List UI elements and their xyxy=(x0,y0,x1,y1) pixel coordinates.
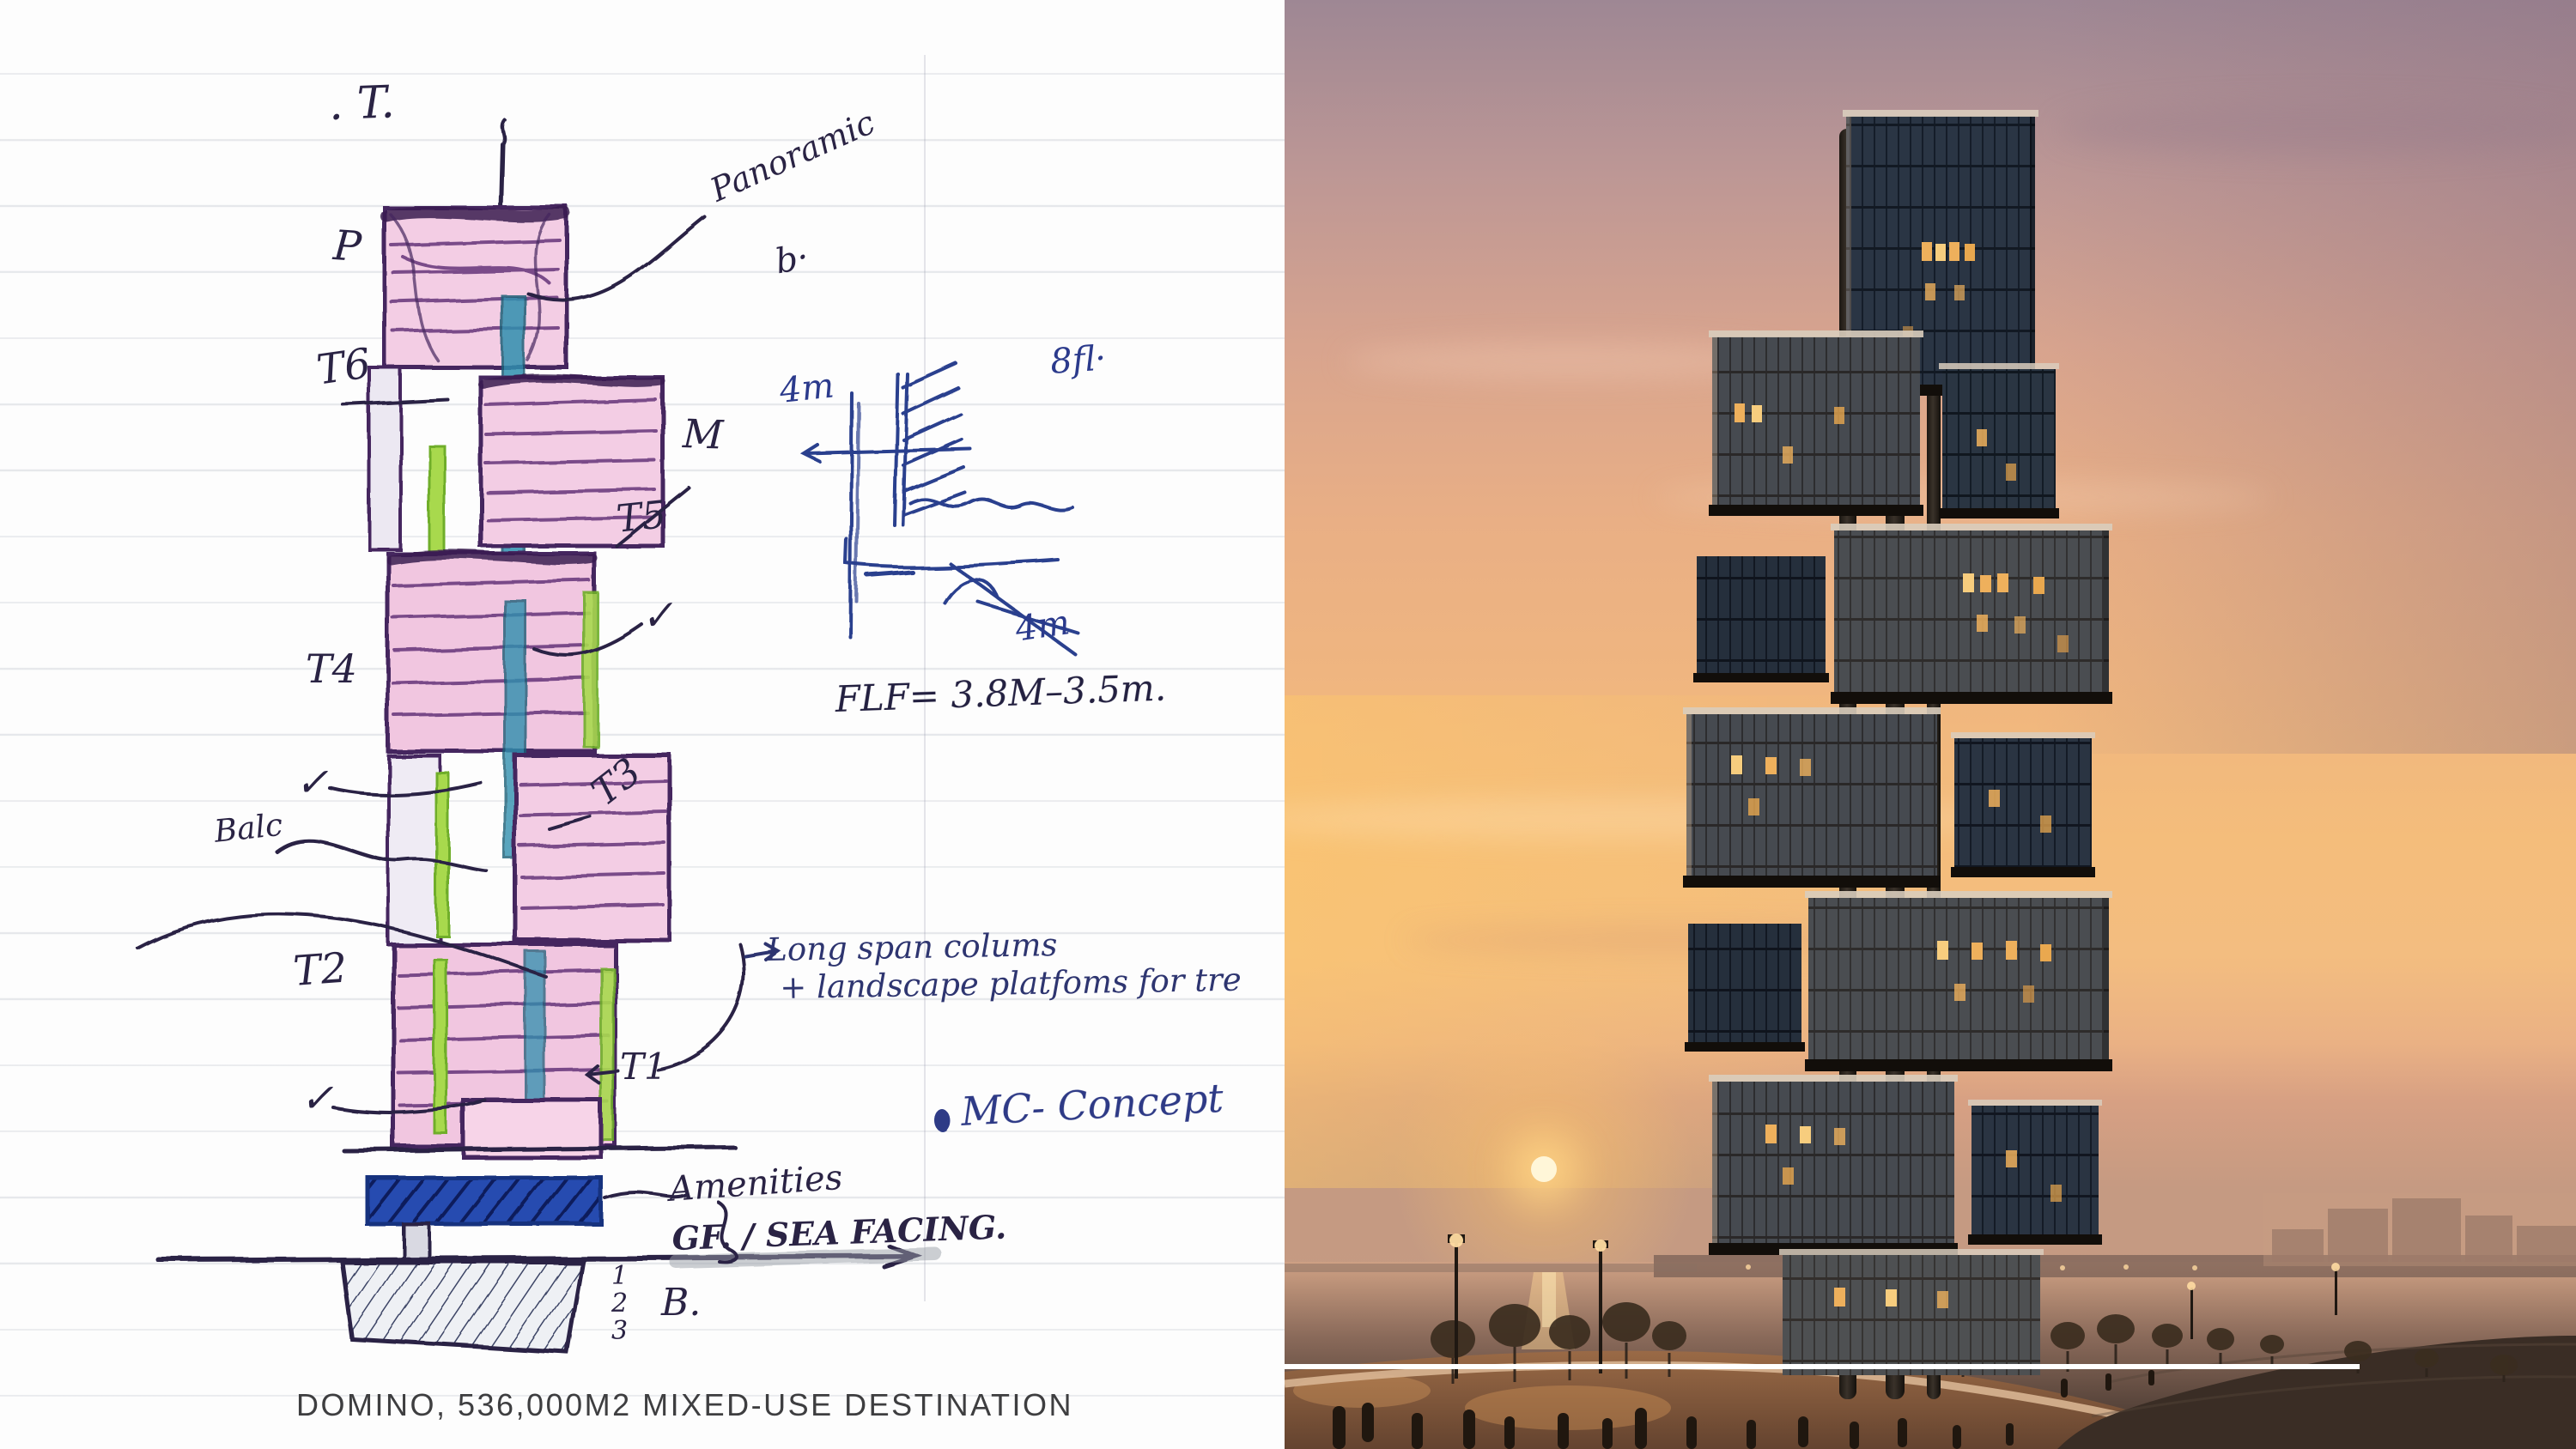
label-basement: B. xyxy=(661,1284,701,1322)
tower-box-l3-left xyxy=(1693,556,1829,682)
sketch-panel: . T. P Panoramic b· T6 M T5 ✓ T4 ✓ T3 Ba… xyxy=(0,0,1285,1449)
tower-box-l4-right xyxy=(1951,732,2095,877)
tower-box-l5-left xyxy=(1685,924,1805,1052)
label-t6: T6 xyxy=(314,343,374,391)
checkmark: ✓ xyxy=(295,762,329,802)
label-floors: 8fl· xyxy=(1049,341,1107,379)
waterfront-scene xyxy=(1285,0,2576,1449)
render-photo-panel xyxy=(1285,0,2576,1449)
slide-divider-line xyxy=(1285,1364,2360,1369)
amenities-slab xyxy=(368,1178,601,1224)
project-caption: DOMINO, 536,000M2 MIXED-USE DESTINATION xyxy=(296,1387,1073,1423)
label-balc: Balc xyxy=(213,810,284,848)
note-long-span-line1: Long span colums xyxy=(766,929,1058,966)
label-m: M xyxy=(682,414,724,455)
label-t5: T5 xyxy=(615,496,668,539)
tower-box-l5-right xyxy=(1805,891,2112,1071)
tower-box-l3-right xyxy=(1831,524,2112,704)
label-t1: T1 xyxy=(620,1049,667,1085)
label-b-upper: b· xyxy=(773,239,811,279)
label-t4: T4 xyxy=(306,649,357,688)
slide: . T. P Panoramic b· T6 M T5 ✓ T4 ✓ T3 Ba… xyxy=(0,0,2576,1449)
tower-podium-box xyxy=(1779,1249,2044,1375)
checkmark: ✓ xyxy=(301,1078,334,1118)
tower-box-l2-right xyxy=(1939,363,2059,518)
note-long-span-line2: + landscape platfoms for tre xyxy=(780,964,1242,1003)
label-top-t: . T. xyxy=(328,80,395,127)
modular-tower xyxy=(1683,110,2112,1399)
tower-sketch-drawing xyxy=(0,0,1285,1449)
city-skyline xyxy=(2263,1193,2576,1266)
sketch-mast xyxy=(501,120,505,209)
basement-level-2: 2 xyxy=(611,1291,628,1317)
tower-box-l6-right xyxy=(1968,1100,2102,1245)
tower-box-l2-left xyxy=(1709,330,1923,516)
label-dim-top: 4m xyxy=(778,368,835,408)
checkmark: ✓ xyxy=(639,594,676,637)
basement-level-3: 3 xyxy=(611,1319,628,1344)
label-dim-bottom: 4m xyxy=(1013,605,1072,646)
label-p: P xyxy=(332,225,363,268)
tower-box-l6-left xyxy=(1709,1075,1958,1255)
basement-block xyxy=(342,1262,582,1352)
tower-box-l4-left xyxy=(1683,707,1941,888)
label-t2: T2 xyxy=(292,948,349,992)
basement-level-1: 1 xyxy=(611,1264,628,1289)
